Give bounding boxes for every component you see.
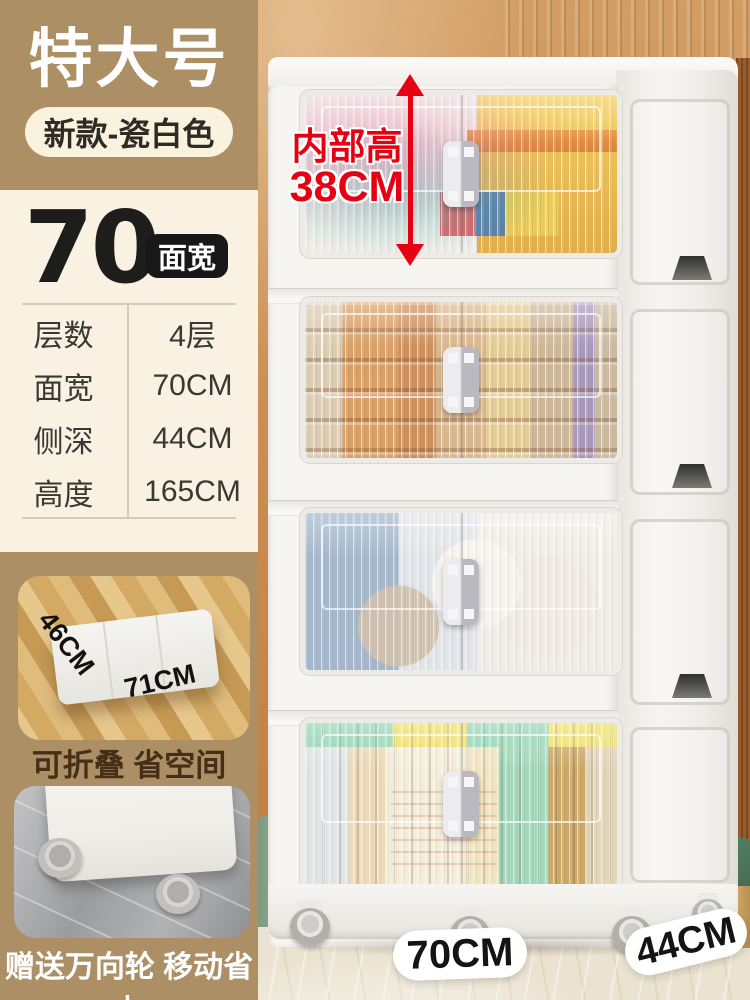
caster-wheel — [38, 838, 82, 878]
size-header-block: 特大号 新款-瓷白色 — [0, 0, 258, 190]
wheels-photo — [14, 786, 250, 938]
door-handle — [443, 559, 479, 625]
spec-label: 侧深 — [0, 417, 127, 461]
width-badge: 面宽 — [146, 234, 228, 278]
tier2-door-window — [300, 297, 622, 463]
spec-label: 面宽 — [0, 364, 127, 408]
spec-row: 面宽 70CM — [0, 359, 258, 412]
wood-trim — [736, 58, 750, 858]
spec-table: 层数 4层 面宽 70CM 侧深 44CM 高度 165CM — [0, 306, 258, 518]
spec-value: 165CM — [127, 475, 258, 509]
spec-row: 侧深 44CM — [0, 412, 258, 465]
inner-height-annotation: 内部高 38CM — [278, 128, 416, 210]
tier4-door-window — [300, 718, 622, 890]
door-handle — [443, 347, 479, 413]
arrow-up-icon — [396, 74, 424, 96]
caster-wheel — [156, 874, 200, 914]
fold-caption: 可折叠 省空间 — [0, 740, 258, 785]
spec-row: 层数 4层 — [0, 306, 258, 359]
spec-value: 70CM — [127, 369, 258, 403]
inner-height-label: 内部高 — [278, 128, 416, 166]
folded-box-photo: 46CM 71CM — [18, 576, 250, 740]
variant-pill: 新款-瓷白色 — [25, 107, 233, 157]
spec-label: 高度 — [0, 470, 127, 514]
promo-panel: 46CM 71CM 可折叠 省空间 赠送万向轮 移动省力 — [0, 552, 258, 1000]
caster-wheel — [288, 900, 332, 946]
front-width-tag: 70CM — [392, 927, 528, 982]
door-handle — [443, 771, 479, 837]
spec-label: 层数 — [0, 311, 127, 355]
product-promo-image: 内部高 38CM 70CM 44CM 特大号 新款-瓷白色 70 面宽 层数 4… — [0, 0, 750, 1000]
wheels-caption: 赠送万向轮 移动省力 — [0, 942, 258, 1000]
size-title: 特大号 — [0, 8, 258, 100]
spec-value: 44CM — [127, 422, 258, 456]
divider — [22, 303, 236, 305]
spec-panel: 70 面宽 层数 4层 面宽 70CM 侧深 44CM 高度 165CM — [0, 190, 258, 552]
tier3-door-window — [300, 508, 622, 675]
width-big-number: 70 — [24, 198, 157, 298]
spec-row: 高度 165CM — [0, 465, 258, 518]
arrow-down-icon — [396, 244, 424, 266]
inner-height-value: 38CM — [278, 166, 416, 210]
door-handle — [443, 141, 479, 207]
side-groove — [630, 727, 730, 883]
spec-value: 4层 — [127, 311, 258, 355]
